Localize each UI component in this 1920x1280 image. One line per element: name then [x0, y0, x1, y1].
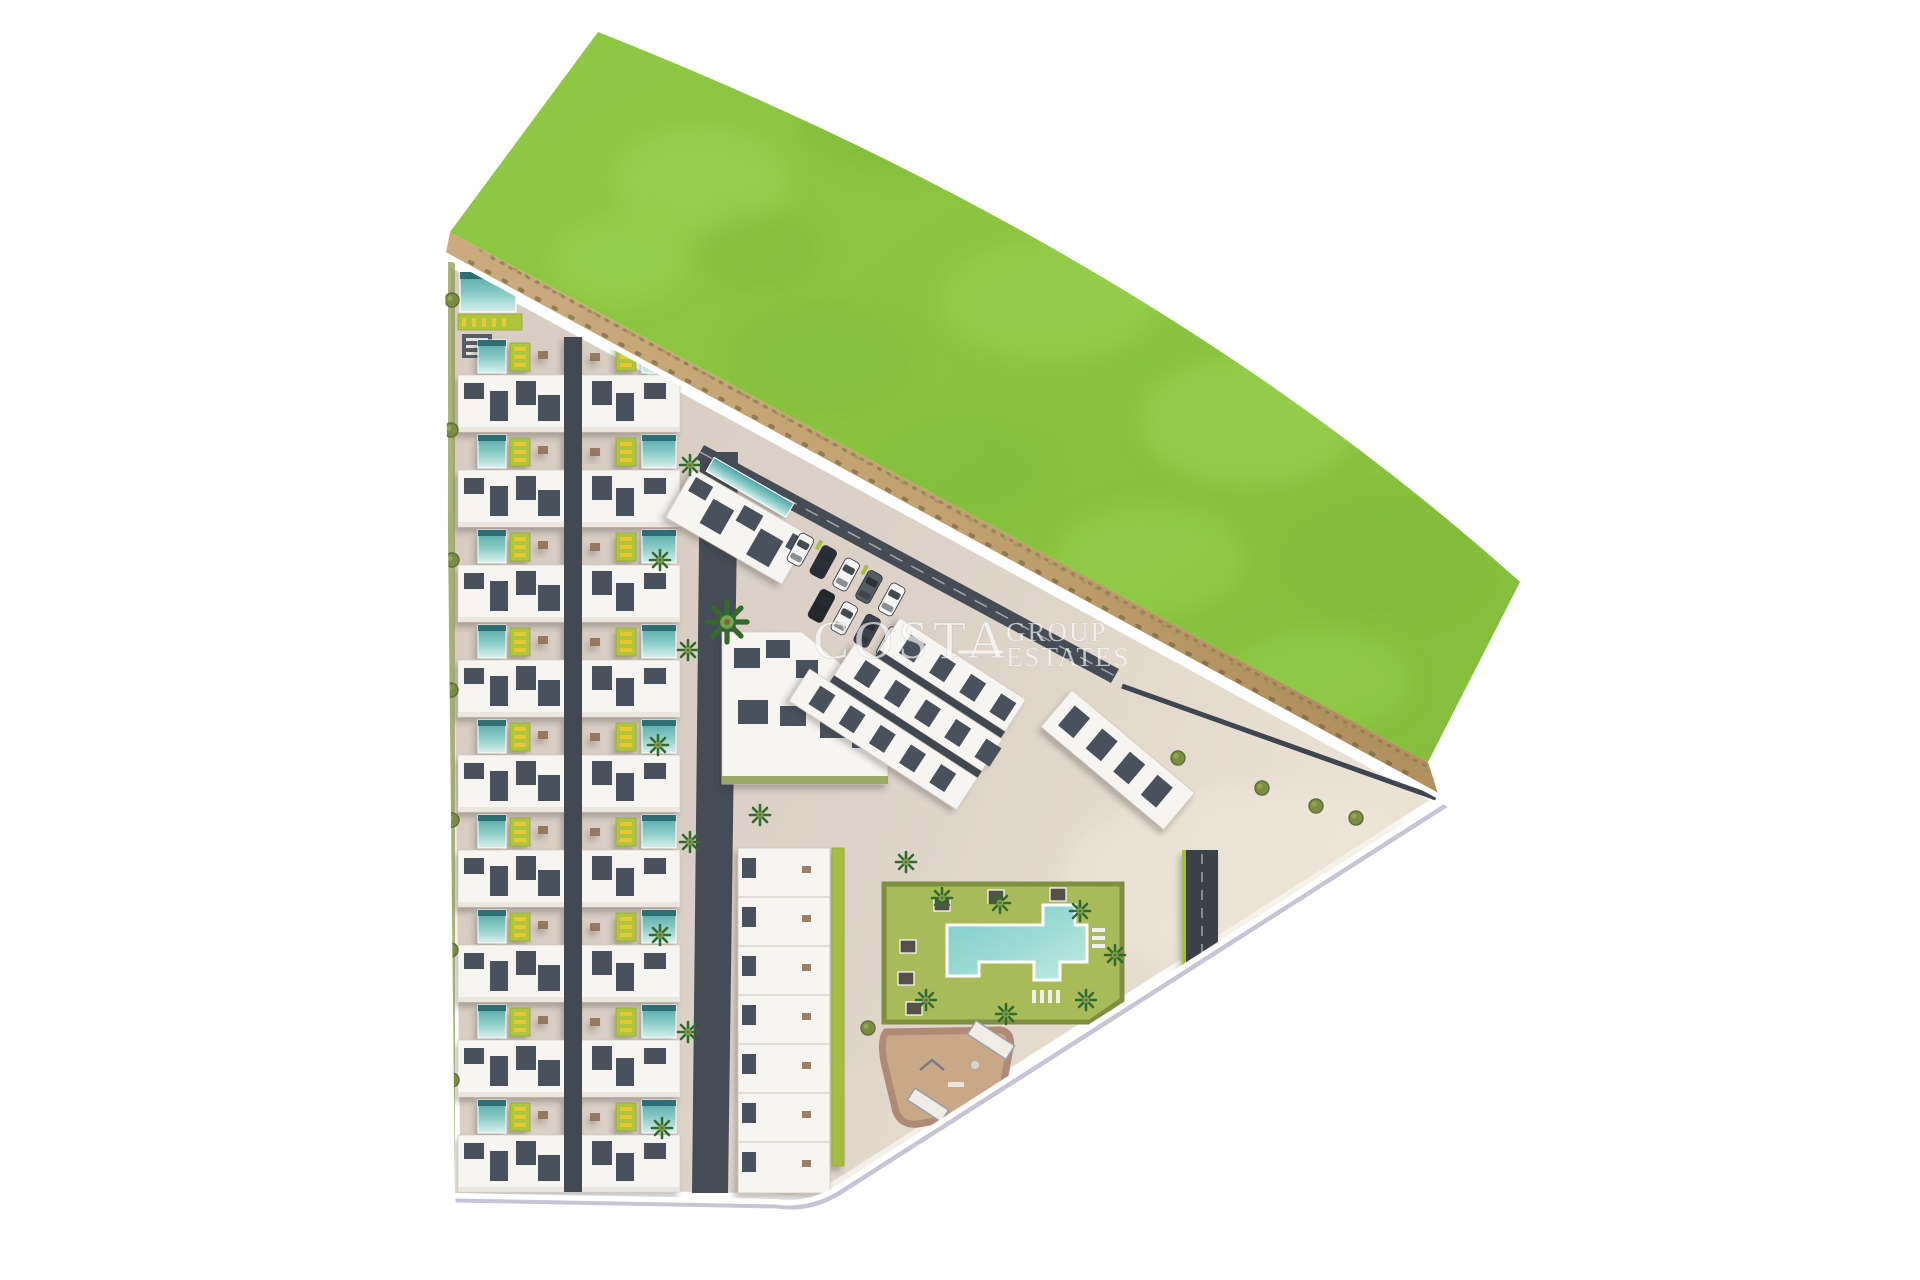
townhouse-column — [458, 337, 680, 1192]
watermark-brand: COSTA — [813, 610, 1011, 670]
townhouse-row — [458, 432, 680, 527]
palm-tree-icon — [678, 1022, 698, 1042]
palm-tree-icon — [650, 550, 670, 570]
palm-tree-icon — [707, 602, 747, 642]
palm-tree-icon — [680, 455, 700, 475]
watermark: COSTA GROUP ESTATES — [813, 610, 1130, 672]
play-equipment — [971, 1061, 979, 1069]
bush-icon — [445, 293, 459, 307]
bush-icon — [1349, 811, 1363, 825]
palm-tree-icon — [990, 893, 1010, 913]
site-plan-svg: COSTA GROUP ESTATES — [0, 0, 1920, 1280]
townhouse-row — [458, 812, 680, 907]
apartment-column-south — [738, 848, 844, 1193]
palm-tree-icon — [916, 990, 936, 1010]
palm-tree-icon — [932, 888, 952, 908]
palm-tree-icon — [678, 640, 698, 660]
palm-tree-icon — [1076, 990, 1096, 1010]
palm-tree-icon — [652, 1118, 672, 1138]
townhouse-row — [458, 1002, 680, 1097]
palm-tree-icon — [1105, 945, 1125, 965]
bush-icon — [1171, 751, 1185, 765]
watermark-estates: ESTATES — [1006, 642, 1130, 672]
site-plan-render: COSTA GROUP ESTATES — [0, 0, 1920, 1280]
townhouse-row — [458, 1097, 680, 1192]
hedge-strip — [832, 848, 844, 1166]
palm-tree-icon — [680, 832, 700, 852]
palm-tree-icon — [1070, 901, 1090, 921]
corner-lawn — [458, 314, 522, 330]
townhouse-row — [458, 622, 680, 717]
townhouse-row — [458, 527, 680, 622]
palm-tree-icon — [996, 1004, 1016, 1024]
palm-tree-icon — [896, 852, 916, 872]
palm-tree-icon — [750, 805, 770, 825]
bush-icon — [861, 1021, 875, 1035]
play-equipment — [948, 1082, 964, 1087]
bush-icon — [1255, 781, 1269, 795]
townhouse-row — [458, 907, 680, 1002]
palm-tree-icon — [648, 735, 668, 755]
palm-tree-icon — [650, 925, 670, 945]
bush-icon — [1309, 799, 1323, 813]
townhouse-row — [458, 717, 680, 812]
